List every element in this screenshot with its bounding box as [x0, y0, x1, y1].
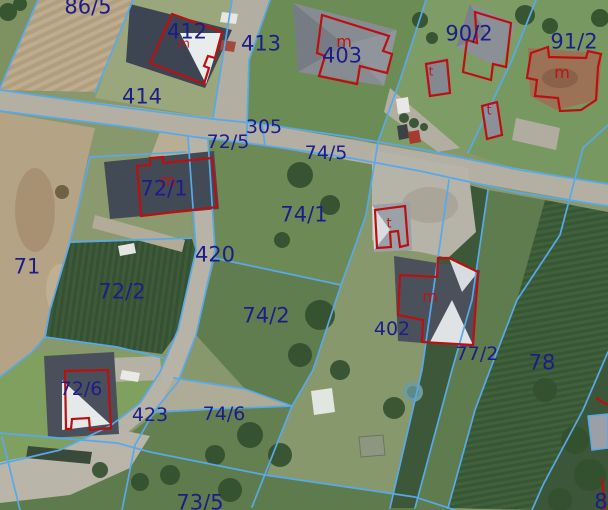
parcel-boundary-line	[247, 0, 270, 127]
parcel-number-label: 74/1	[280, 203, 327, 227]
parcel-number-label: 90/2	[445, 22, 492, 46]
building-letter-label: m	[422, 287, 438, 306]
parcel-boundary-line	[174, 378, 292, 406]
parcel-boundary-line	[45, 242, 70, 337]
building-letter-label: t	[429, 64, 434, 78]
building-outline	[596, 398, 608, 405]
parcel-boundary-line	[0, 0, 38, 88]
parcel-boundary-line	[0, 433, 455, 510]
building-letter-label: m	[554, 63, 570, 82]
parcel-number-label: 78	[529, 351, 556, 375]
parcel-number-label: 413	[241, 32, 281, 56]
parcel-boundary-line	[45, 337, 163, 358]
parcel-number-label: 72/2	[98, 280, 145, 304]
parcel-number-label: 420	[195, 243, 235, 267]
map-canvas[interactable]: mmttmmtm86/541241340390/291/241430572/57…	[0, 0, 608, 510]
parcel-number-label: 423	[132, 404, 168, 426]
parcel-number-label: 91/2	[550, 30, 597, 54]
cadastral-overlay: mmttmmtm86/541241340390/291/241430572/57…	[0, 0, 608, 510]
parcel-number-label: 72/6	[60, 378, 103, 400]
parcel-boundary-line	[70, 157, 90, 242]
parcel-boundary-line	[0, 337, 45, 377]
building-letter-label: t	[386, 217, 391, 232]
parcel-boundary-line	[90, 152, 186, 157]
parcel-number-label: 72/1	[140, 177, 187, 201]
parcel-boundary-line	[532, 352, 608, 510]
parcel-number-label: 412	[167, 20, 207, 44]
parcel-number-label: 403	[322, 44, 362, 68]
parcel-boundary-line	[378, 0, 426, 142]
parcel-number-label: 74/2	[242, 304, 289, 328]
parcel-number-label: 402	[374, 318, 410, 340]
building-letter-label: t	[486, 104, 491, 119]
building-outline	[482, 102, 502, 139]
parcel-number-label: 305	[246, 116, 282, 138]
parcel-boundary-line	[2, 437, 20, 510]
parcel-boundary-line	[70, 238, 192, 242]
parcel-number-label: 8	[594, 490, 607, 510]
parcel-number-label: 77/2	[456, 343, 499, 365]
parcel-boundary-line	[0, 90, 608, 184]
parcel-number-label: 414	[122, 85, 162, 109]
parcel-number-label: 86/5	[64, 0, 111, 19]
parcel-number-label: 73/5	[176, 491, 223, 510]
parcel-number-label: 72/5	[207, 131, 250, 153]
parcel-number-label: 71	[14, 255, 41, 279]
parcel-number-label: 74/6	[203, 403, 246, 425]
parcel-number-label: 74/5	[305, 142, 348, 164]
